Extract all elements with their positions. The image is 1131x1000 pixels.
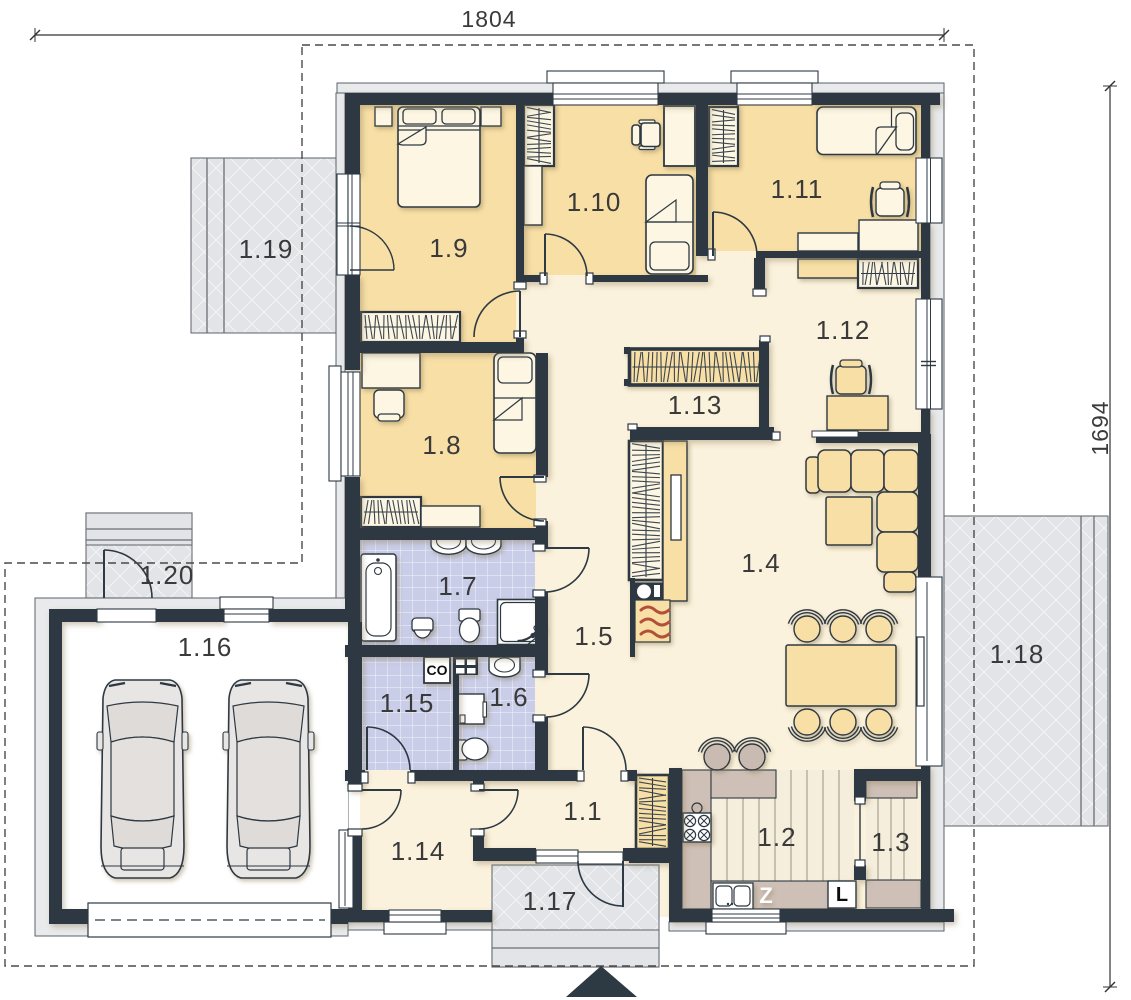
svg-text:Z: Z bbox=[759, 883, 772, 908]
svg-text:1.13: 1.13 bbox=[668, 390, 723, 420]
svg-text:1.4: 1.4 bbox=[741, 548, 780, 578]
svg-text:1.1: 1.1 bbox=[563, 796, 602, 826]
svg-text:1.2: 1.2 bbox=[757, 822, 796, 852]
svg-text:CO: CO bbox=[427, 662, 448, 678]
svg-text:1.17: 1.17 bbox=[523, 886, 578, 916]
svg-text:1.14: 1.14 bbox=[391, 836, 446, 866]
svg-text:1.3: 1.3 bbox=[871, 827, 910, 857]
svg-text:L: L bbox=[836, 884, 848, 906]
svg-text:1.5: 1.5 bbox=[574, 621, 613, 651]
svg-text:1.7: 1.7 bbox=[438, 571, 477, 601]
svg-text:1.11: 1.11 bbox=[771, 174, 824, 204]
svg-text:1.16: 1.16 bbox=[178, 632, 233, 662]
svg-text:1.8: 1.8 bbox=[422, 430, 461, 460]
svg-text:1.6: 1.6 bbox=[489, 682, 528, 712]
svg-text:1.15: 1.15 bbox=[380, 688, 435, 718]
svg-text:1694: 1694 bbox=[1087, 400, 1113, 455]
svg-text:1804: 1804 bbox=[461, 6, 516, 32]
svg-text:1.10: 1.10 bbox=[567, 187, 622, 217]
svg-text:1.12: 1.12 bbox=[816, 315, 871, 345]
svg-text:1.9: 1.9 bbox=[429, 233, 468, 263]
svg-text:1.18: 1.18 bbox=[990, 639, 1045, 669]
svg-text:1.19: 1.19 bbox=[239, 234, 294, 264]
svg-text:1.20: 1.20 bbox=[140, 560, 195, 590]
